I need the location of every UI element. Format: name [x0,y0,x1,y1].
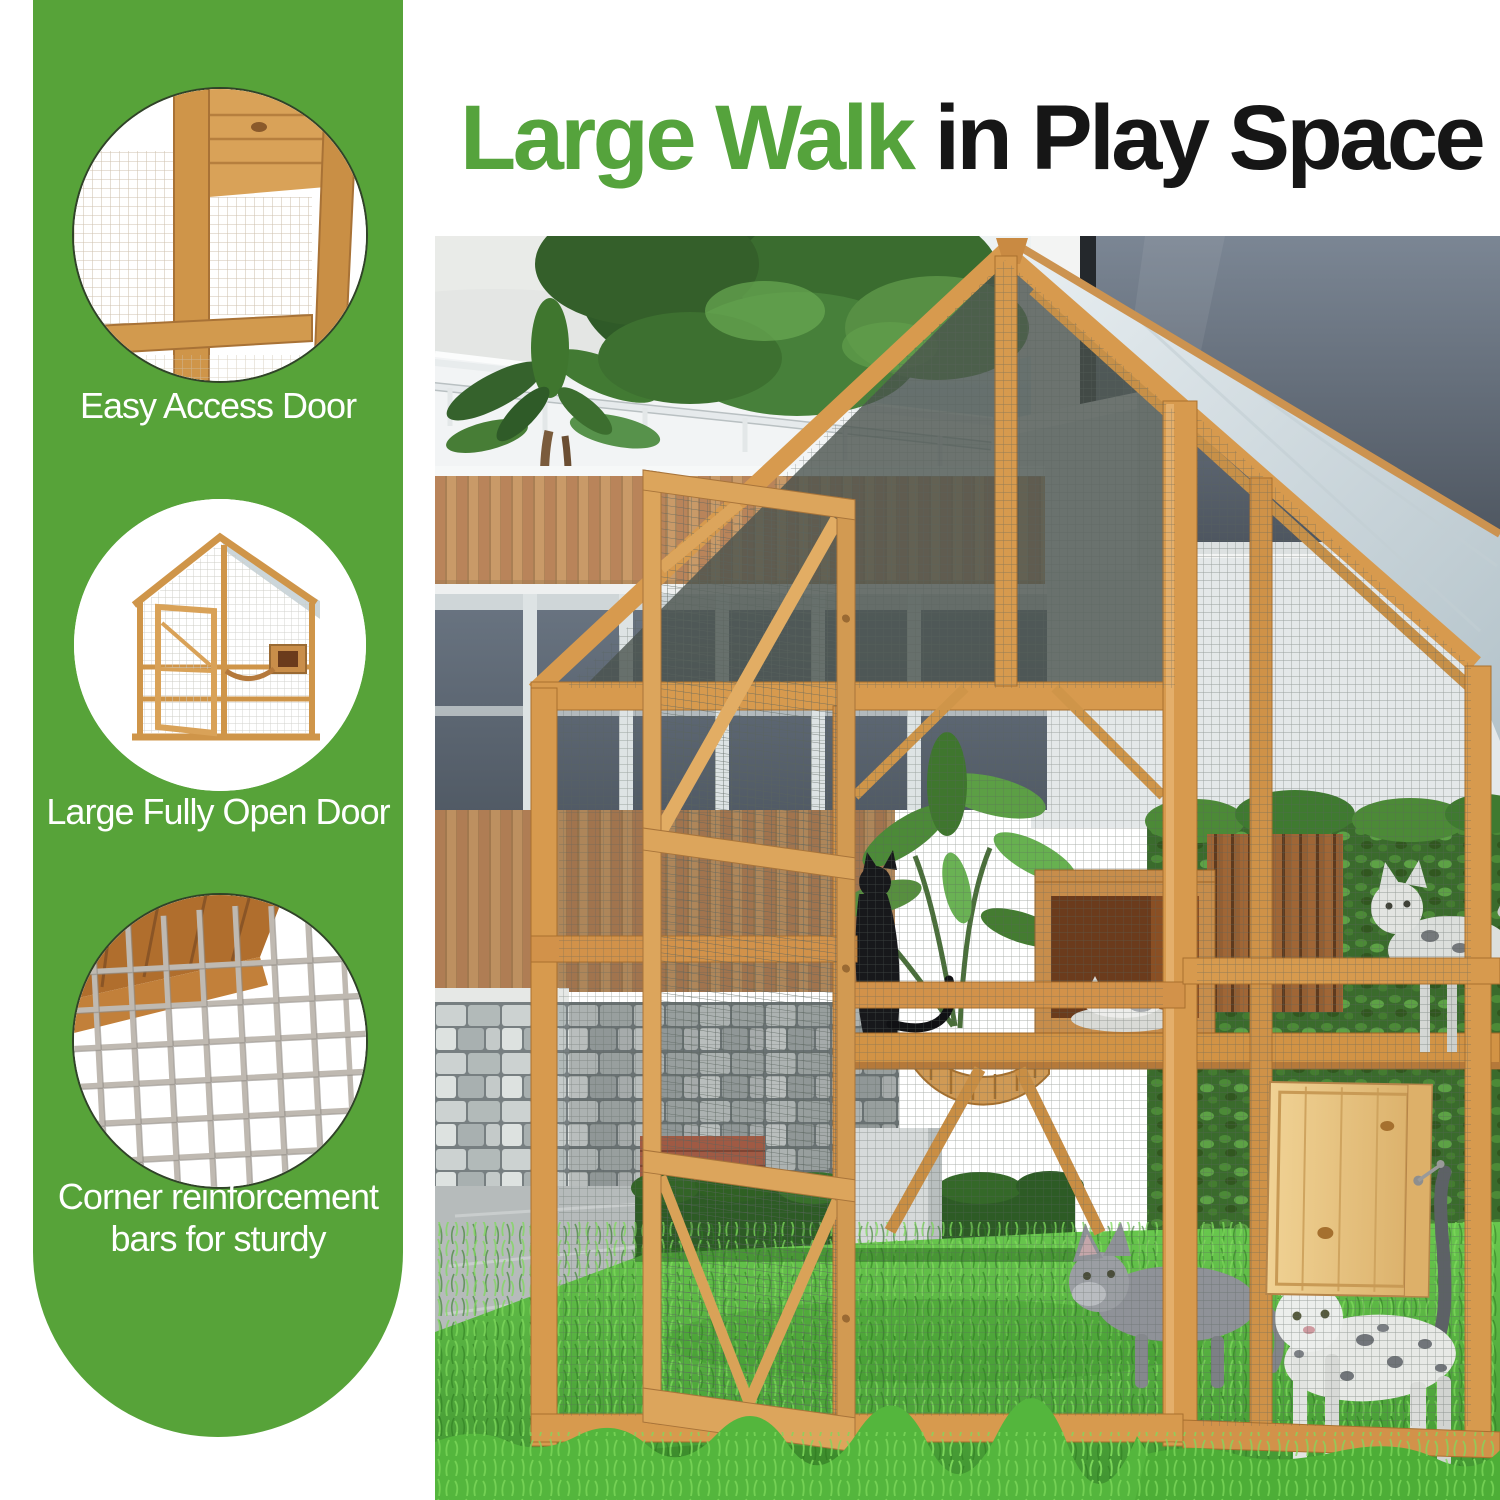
left-post [531,688,557,1446]
feature-label-easy-access-door: Easy Access Door [43,385,393,427]
open-mesh-door [643,470,855,1452]
feature-image-easy-access-door [74,89,366,381]
mesh-bottom [74,355,314,381]
main-product-photo [435,236,1500,1500]
page-title: Large Walk in Play Space [460,88,1482,188]
feature-sidebar: Easy Access Door [33,0,403,1437]
feature-image-fully-open-door [74,499,366,791]
title-highlight: Large Walk [460,87,912,189]
product-infographic-poster: Easy Access Door [0,0,1500,1500]
feature-label-corner-bars: Corner reinforcement bars for sturdy [43,1176,393,1260]
wood-panel [209,89,326,197]
mesh-center [209,197,312,315]
door-closeup-illustration [74,89,366,381]
feature-image-corner-bars [74,895,366,1187]
cat-flap-door [1266,1082,1446,1297]
title-rest: in Play Space [912,87,1482,189]
catio-backyard-scene [435,236,1500,1500]
mesh-left [74,151,174,331]
mesh-corner-illustration [74,895,366,1187]
mini-open-door [158,607,214,733]
feature-label-fully-open-door: Large Fully Open Door [43,791,393,833]
mini-catio-illustration [74,499,366,791]
